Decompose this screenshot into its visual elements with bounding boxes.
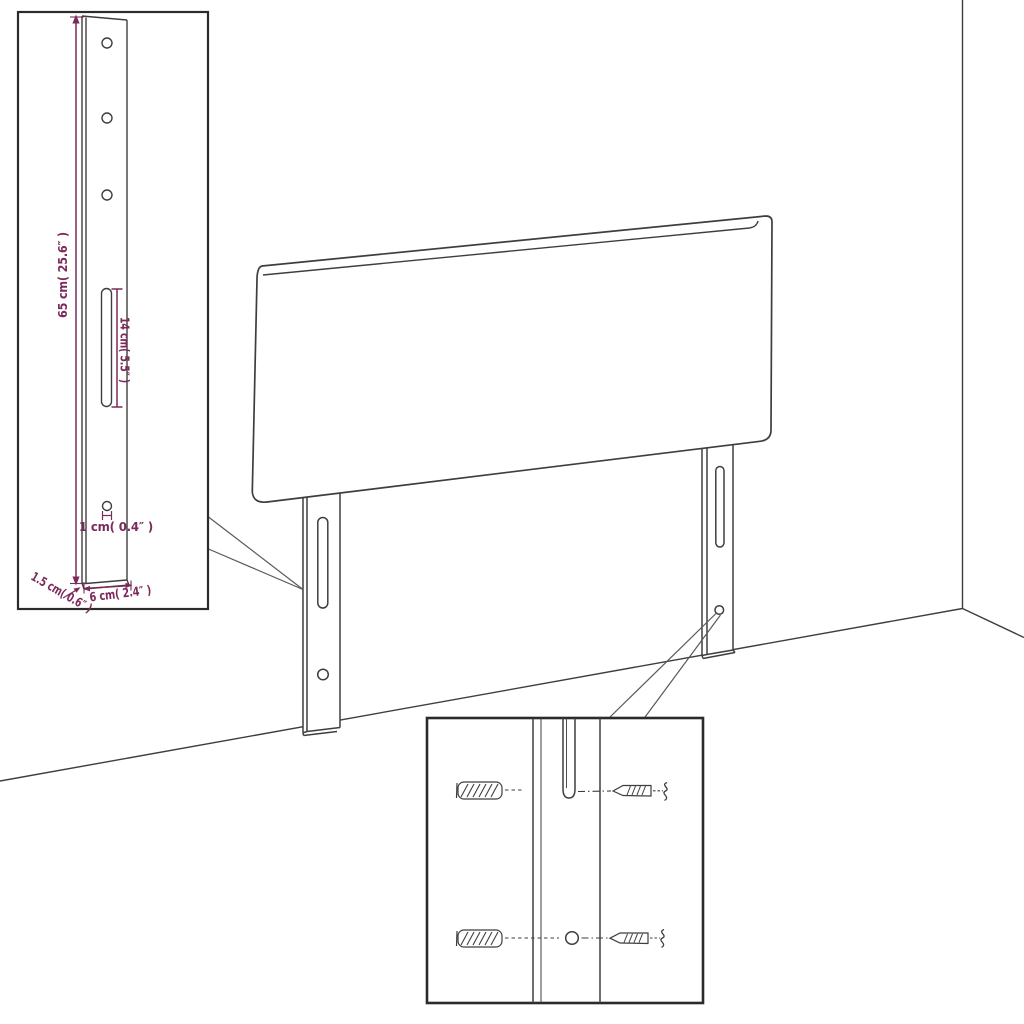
headboard-assembly-diagram: 65 cm( 25.6″ ) 14 cm( 5.5″ ) 1 cm( 0.4″ … [0,0,1024,1024]
floor-line-right [963,609,1024,638]
callout-right-right-line [644,615,721,719]
headboard-panel [252,216,772,502]
slot-dim-label: 14 cm( 5.5″ ) [118,317,133,383]
callout-right-left-line [609,613,718,719]
left-leg-body [303,484,340,735]
diagram-svg: 65 cm( 25.6″ ) 14 cm( 5.5″ ) 1 cm( 0.4″ … [0,0,1024,1024]
right-leg-foot-join [702,656,703,659]
right-leg [702,440,735,659]
callout-left-upper-line [209,517,304,590]
hole-dim-label: 1 cm( 0.4″ ) [79,519,153,534]
right-leg-bottom-join [702,655,707,656]
callouts [209,517,721,719]
left-leg [303,484,340,736]
left-leg-foot-join [303,733,304,736]
top-wall-plug-collar [457,783,458,798]
leg-detail-inset: 65 cm( 25.6″ ) 14 cm( 5.5″ ) 1 cm( 0.4″ … [18,12,208,616]
mounting-inset-border [427,718,703,1003]
mounting-detail-inset [427,718,703,1003]
bottom-wall-plug-collar [457,931,458,946]
height-dim-label: 65 cm( 25.6″ ) [55,232,70,318]
headboard-outline [252,216,772,502]
callout-left-lower-line [209,549,304,590]
